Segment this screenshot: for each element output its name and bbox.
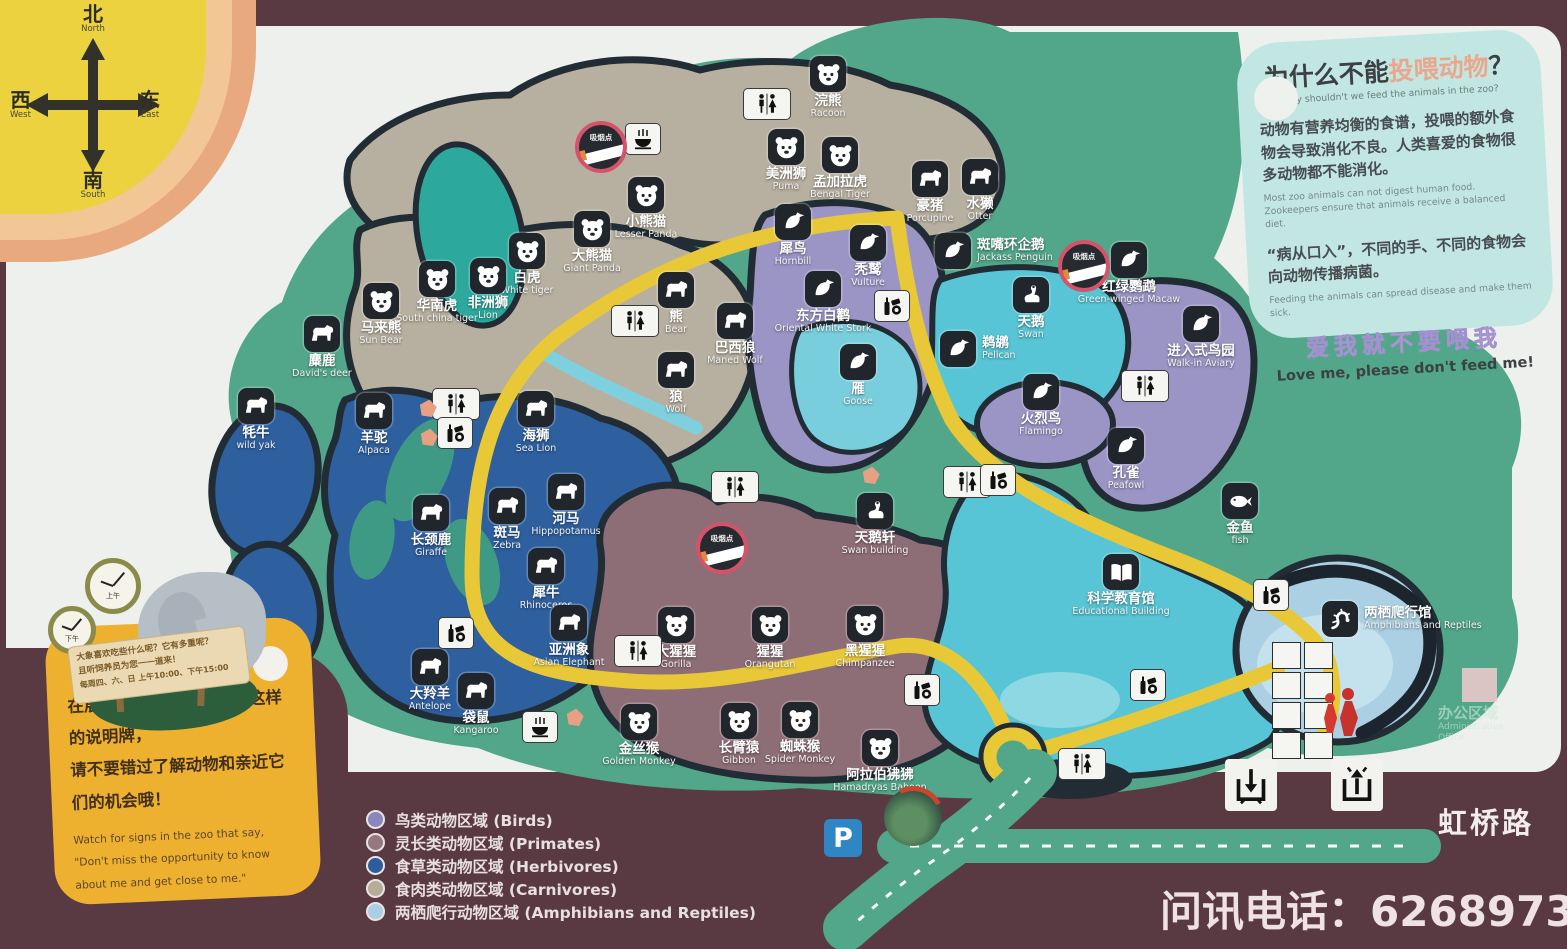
legend-color-dot [366,879,385,898]
card-text-en: Watch for signs in the zoo that say, "Do… [73,820,302,898]
legend-item: 食草类动物区域 (Herbivores) [366,854,756,877]
legend-color-dot [366,810,385,829]
zoo-map-sign: 北North 南South 西West 东East 浣熊 Racoon [0,0,1567,949]
legend-item: 灵长类动物区域 (Primates) [366,831,756,854]
service-cell-icon [1272,642,1301,669]
info-paragraph1-cn: 动物有营养均衡的食谱，投喂的额外食物会导致消化不良。人类喜爱的食物很多动物都不能… [1259,105,1526,187]
legend-label: 两栖爬行动物区域 (Amphibians and Reptiles) [395,901,756,923]
no-feeding-info-panel: 为什么不能投喂动物？ Why shouldn't we feed the ani… [1235,28,1555,341]
zoo-logo [884,788,942,846]
compass-east-label: 东East [140,90,160,120]
legend-color-dot [366,833,385,852]
legend-color-dot [366,902,385,921]
parking-icon: P [824,819,862,857]
service-cell-icon [1304,642,1333,669]
elephant-illustration: 上午 下午 大象喜欢吃些什么呢？它有多重呢？ 且听饲养员为您一一道来！ 每周四、… [30,540,350,760]
admin-area-marker [1462,668,1497,702]
compass-south-label: 南South [81,170,106,200]
legend-label: 灵长类动物区域 (Primates) [395,832,601,854]
compass-north-label: 北North [81,4,105,34]
legend-item: 鸟类动物区域 (Birds) [366,808,756,831]
legend-item: 两栖爬行动物区域 (Amphibians and Reptiles) [366,900,756,923]
corner-decoration: 北North 南South 西West 东East [0,0,262,268]
road-name-label: 虹桥路 [1438,800,1534,842]
legend-item: 食肉类动物区域 (Carnivores) [366,877,756,900]
compass-rose: 北North 南South 西West 东East [8,2,178,208]
legend-label: 食肉类动物区域 (Carnivores) [395,878,617,900]
legend-label: 鸟类动物区域 (Birds) [395,809,553,831]
exit-icon [1331,759,1383,811]
service-cell-icon [1272,672,1301,699]
service-cell-icon [1272,732,1301,759]
legend: 鸟类动物区域 (Birds) 灵长类动物区域 (Primates) 食草类动物区… [366,808,756,923]
am-clock-icon: 上午 [85,558,141,614]
tourists-figures-icon [1318,688,1364,744]
service-cell-icon [1272,702,1301,729]
legend-color-dot [366,856,385,875]
legend-label: 食草类动物区域 (Herbivores) [395,855,619,877]
admin-office-label: 办公区域 Administrative Office [1438,704,1504,744]
info-paragraph1-en: Most zoo animals can not digest human fo… [1263,177,1529,232]
entrance-icon [1225,759,1277,811]
compass-west-label: 西West [10,90,31,120]
inquiry-phone: 问讯电话：62689733 [1160,878,1550,939]
info-paragraph2-cn: “病从口入”，不同的手、不同的食物会向动物传播病菌。 [1266,229,1532,289]
